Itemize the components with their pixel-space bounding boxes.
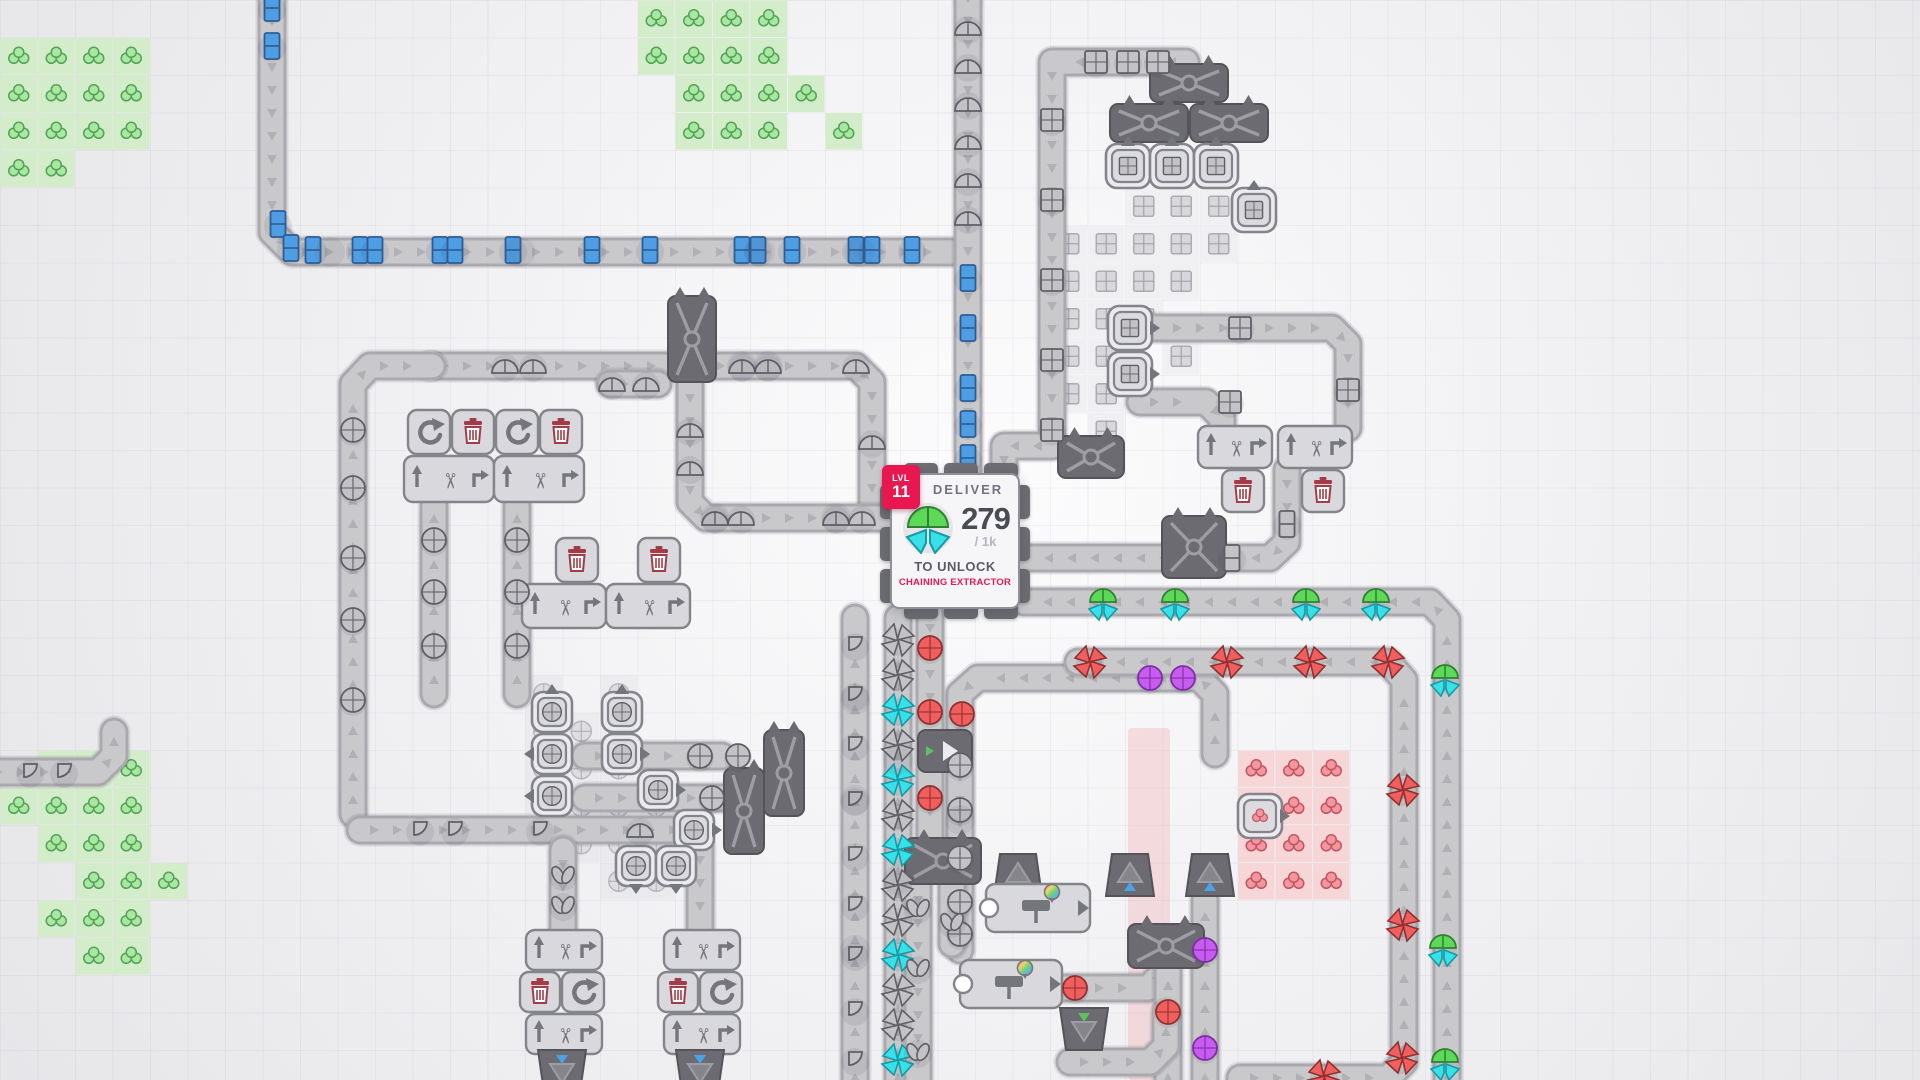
square-node-icon — [1209, 234, 1229, 254]
reward-name: CHAINING EXTRACTOR — [892, 577, 1018, 588]
resource-cell-gem[interactable] — [676, 38, 713, 75]
item-circle4-gray[interactable] — [339, 608, 367, 636]
machine-xmerge[interactable] — [668, 287, 716, 382]
square-node-icon — [1171, 234, 1191, 254]
machine-extractor[interactable] — [1232, 180, 1276, 232]
resource-cell-gem[interactable] — [1, 151, 38, 188]
resource-cell-gem[interactable] — [76, 901, 113, 938]
item-half[interactable] — [519, 354, 547, 382]
resource-cell-heart[interactable] — [1313, 788, 1350, 825]
item-half[interactable] — [598, 372, 626, 400]
machine-tunnel[interactable] — [1186, 854, 1234, 896]
resource-cell-gem[interactable] — [38, 151, 75, 188]
item-quarter[interactable] — [841, 733, 869, 761]
unlock-label: TO UNLOCK — [892, 559, 1018, 574]
square-node-icon — [1134, 234, 1154, 254]
resource-cell-gem[interactable] — [713, 1, 750, 38]
level-number: 11 — [892, 483, 910, 501]
machine-cutter[interactable]: ✂ — [522, 584, 606, 628]
machine-cutter[interactable]: ✂ — [664, 930, 740, 970]
machine-cutter[interactable]: ✂ — [664, 1014, 740, 1054]
game-viewport: ✂✂✂✂✂✂✂✂✂✂ LVL 11 DELIVER 279 / 1k TO UN… — [0, 0, 1920, 1080]
item-half[interactable] — [632, 372, 660, 400]
machine-rotator[interactable] — [700, 972, 742, 1012]
resource-cell-gem[interactable] — [38, 826, 75, 863]
resource-cell-gem[interactable] — [76, 76, 113, 113]
item-circle4-gray[interactable] — [339, 688, 367, 716]
svg-text:✂: ✂ — [691, 1027, 715, 1045]
item-circle4-gray[interactable] — [503, 634, 531, 662]
square-node-icon — [1134, 271, 1154, 291]
resource-cell-gem[interactable] — [676, 1, 713, 38]
svg-text:✂: ✂ — [1224, 440, 1248, 458]
resource-cell-square[interactable] — [1163, 263, 1200, 300]
resource-cell-gem[interactable] — [788, 76, 825, 113]
item-circle4-red[interactable] — [1061, 976, 1089, 1004]
resource-cell-gem[interactable] — [713, 38, 750, 75]
machine-tunnel[interactable] — [1106, 854, 1154, 896]
item-square4[interactable] — [1334, 378, 1362, 406]
resource-cell-gem[interactable] — [113, 901, 150, 938]
item-half[interactable] — [626, 818, 654, 846]
resource-cell-square[interactable] — [1201, 226, 1238, 263]
item-circle4-red[interactable] — [916, 636, 944, 664]
machine-cutter[interactable]: ✂ — [526, 1014, 602, 1054]
belt-item-shadow — [821, 503, 851, 533]
item-half[interactable] — [848, 506, 876, 534]
resource-cell-square[interactable] — [1126, 226, 1163, 263]
square-node-icon — [1209, 196, 1229, 216]
item-square4[interactable] — [1038, 108, 1066, 136]
item-square4[interactable] — [1038, 348, 1066, 376]
svg-text:✂: ✂ — [637, 599, 661, 617]
machine-extractor[interactable] — [1108, 306, 1160, 350]
resource-cell-square[interactable] — [1126, 188, 1163, 225]
item-leaf[interactable] — [938, 910, 966, 938]
square-node-icon — [1171, 271, 1191, 291]
resource-cell-gem[interactable] — [751, 1, 788, 38]
resource-cell-gem[interactable] — [638, 1, 675, 38]
item-quarter[interactable] — [441, 818, 469, 846]
delivery-target: / 1k — [975, 534, 997, 550]
item-square4[interactable] — [1114, 50, 1142, 78]
item-half[interactable] — [727, 506, 755, 534]
resource-cell-gem[interactable] — [713, 76, 750, 113]
square-node-icon — [1171, 196, 1191, 216]
belt-item-shadow — [315, 237, 345, 267]
item-circle4-gray[interactable] — [339, 546, 367, 574]
resource-cell-gem[interactable] — [38, 113, 75, 150]
square-node-icon — [1171, 346, 1191, 366]
item-quarter[interactable] — [50, 760, 78, 788]
item-circle4-gray[interactable] — [946, 753, 974, 781]
resource-cell-gem[interactable] — [38, 901, 75, 938]
item-circle4-gray[interactable] — [724, 744, 752, 772]
resource-cell-gem[interactable] — [113, 938, 150, 975]
square-node-icon — [1134, 196, 1154, 216]
item-circle4-red[interactable] — [916, 700, 944, 728]
belt-item-shadow — [753, 351, 783, 381]
resource-cell-gem[interactable] — [76, 938, 113, 975]
machine-extractor[interactable] — [1238, 794, 1290, 838]
belt-item-shadow — [840, 685, 870, 715]
resource-cell-gem[interactable] — [113, 788, 150, 825]
machine-trash[interactable] — [520, 972, 560, 1012]
item-square4[interactable] — [1038, 188, 1066, 216]
item-quarter[interactable] — [406, 818, 434, 846]
belt-item-shadow — [845, 237, 875, 267]
item-circle4-gray[interactable] — [339, 418, 367, 446]
item-quarter[interactable] — [841, 893, 869, 921]
item-quarter[interactable] — [841, 998, 869, 1026]
machine-tunnel[interactable] — [538, 1050, 586, 1080]
belt-item-shadow — [945, 805, 975, 835]
resource-cell-gem[interactable] — [751, 76, 788, 113]
svg-text:✂: ✂ — [528, 472, 552, 490]
resource-cell-gem[interactable] — [113, 863, 150, 900]
belt-item-shadow — [505, 237, 535, 267]
item-square4[interactable] — [1038, 268, 1066, 296]
item-quarter[interactable] — [526, 818, 554, 846]
machine-extractor[interactable] — [1106, 136, 1150, 188]
item-circle4-gray[interactable] — [339, 476, 367, 504]
resource-cell-gem[interactable] — [751, 38, 788, 75]
item-circle4-gray[interactable] — [946, 846, 974, 874]
resource-cell-gem[interactable] — [826, 113, 863, 150]
item-half[interactable] — [491, 354, 519, 382]
resource-patch-gem — [1, 38, 150, 187]
machine-trash[interactable] — [1222, 470, 1264, 512]
item-half[interactable] — [954, 92, 982, 120]
resource-cell-gem[interactable] — [38, 38, 75, 75]
svg-text:✂: ✂ — [553, 943, 577, 961]
item-half[interactable] — [954, 16, 982, 44]
item-circle4-gray[interactable] — [686, 744, 714, 772]
resource-cell-gem[interactable] — [1, 788, 38, 825]
resource-cell-gem[interactable] — [676, 76, 713, 113]
delivered-count: 279 — [961, 503, 1010, 534]
resource-cell-gem[interactable] — [676, 113, 713, 150]
item-circle4-gray[interactable] — [420, 528, 448, 556]
item-half[interactable] — [954, 168, 982, 196]
resource-cell-heart[interactable] — [1276, 751, 1313, 788]
machine-trash[interactable] — [452, 410, 494, 454]
item-leaf[interactable] — [904, 896, 932, 924]
resource-patch-gem — [638, 1, 862, 150]
circle-node-icon — [571, 721, 591, 741]
resource-cell-heart[interactable] — [1238, 863, 1275, 900]
item-square4[interactable] — [1226, 316, 1254, 344]
machine-extractor[interactable] — [1108, 352, 1160, 396]
machine-cutter[interactable]: ✂ — [526, 930, 602, 970]
resource-cell-gem[interactable] — [113, 76, 150, 113]
resource-cell-heart[interactable] — [1238, 751, 1275, 788]
resource-cell-gem[interactable] — [638, 38, 675, 75]
belt-item-shadow — [883, 745, 913, 775]
svg-text:✂: ✂ — [691, 943, 715, 961]
machine-cutter[interactable]: ✂ — [404, 456, 494, 502]
item-circle4-gray[interactable] — [698, 786, 726, 814]
machine-cutter[interactable]: ✂ — [1278, 426, 1352, 468]
machine-rotator[interactable] — [496, 410, 538, 454]
item-circle4-gray[interactable] — [503, 580, 531, 608]
belt-item-shadow — [883, 865, 913, 895]
machine-tunnel[interactable] — [1060, 1008, 1108, 1050]
machine-extractor[interactable] — [1194, 136, 1238, 188]
resource-cell-heart[interactable] — [1313, 751, 1350, 788]
resource-cell-heart[interactable] — [1313, 863, 1350, 900]
item-circle4-purple[interactable] — [1136, 666, 1164, 694]
resource-cell-gem[interactable] — [76, 38, 113, 75]
item-circle4-red[interactable] — [1154, 1000, 1182, 1028]
resource-cell-gem[interactable] — [76, 863, 113, 900]
conveyor-belt[interactable] — [1140, 397, 1223, 428]
resource-cell-square[interactable] — [1088, 226, 1125, 263]
item-quarter[interactable] — [841, 843, 869, 871]
machine-tunnel[interactable] — [676, 1050, 724, 1080]
item-half[interactable] — [954, 130, 982, 158]
resource-cell-square[interactable] — [1163, 188, 1200, 225]
item-half[interactable] — [842, 354, 870, 382]
item-square4[interactable] — [1216, 390, 1244, 418]
item-half[interactable] — [858, 430, 886, 458]
item-circle4-red[interactable] — [948, 702, 976, 730]
machine-rotator[interactable] — [562, 972, 604, 1012]
item-quarter[interactable] — [841, 1048, 869, 1076]
resource-cell-gem[interactable] — [713, 113, 750, 150]
belt-item-shadow — [700, 503, 730, 533]
square-node-icon — [1096, 234, 1116, 254]
machine-cutter[interactable]: ✂ — [1198, 426, 1272, 468]
resource-cell-gem[interactable] — [151, 863, 188, 900]
machine-trash[interactable] — [1302, 470, 1344, 512]
resource-cell-gem[interactable] — [113, 826, 150, 863]
resource-cell-gem[interactable] — [1, 38, 38, 75]
machine-trash[interactable] — [540, 410, 582, 454]
square-node-icon — [1096, 271, 1116, 291]
belt-item-shadow — [745, 237, 775, 267]
delivery-hub[interactable]: LVL 11 DELIVER 279 / 1k TO UNLOCK CHAINI… — [890, 473, 1020, 609]
item-leaf[interactable] — [904, 956, 932, 984]
item-half[interactable] — [676, 456, 704, 484]
item-square4[interactable] — [1144, 50, 1172, 78]
machine-painter[interactable] — [980, 884, 1090, 932]
item-quarter[interactable] — [841, 633, 869, 661]
resource-cell-heart[interactable] — [1276, 863, 1313, 900]
item-square4[interactable] — [1082, 50, 1110, 78]
machine-cutter[interactable]: ✂ — [606, 584, 690, 628]
resource-cell-gem[interactable] — [113, 113, 150, 150]
level-badge: LVL 11 — [882, 465, 920, 509]
svg-text:✂: ✂ — [1304, 440, 1328, 458]
machine-trash[interactable] — [658, 972, 698, 1012]
resource-cell-square[interactable] — [1126, 263, 1163, 300]
item-circle4-purple[interactable] — [1191, 1036, 1219, 1064]
resource-cell-gem[interactable] — [751, 113, 788, 150]
resource-cell-gem[interactable] — [1, 76, 38, 113]
machine-trash[interactable] — [556, 538, 598, 582]
resource-cell-gem[interactable] — [76, 826, 113, 863]
resource-cell-heart[interactable] — [1313, 826, 1350, 863]
svg-text:✂: ✂ — [553, 599, 577, 617]
item-circle4-gray[interactable] — [420, 580, 448, 608]
item-leaf[interactable] — [904, 1040, 932, 1068]
item-circle4-gray[interactable] — [420, 634, 448, 662]
item-half[interactable] — [954, 206, 982, 234]
item-circle4-red[interactable] — [916, 786, 944, 814]
machine-extractor[interactable] — [1150, 136, 1194, 188]
machine-cutter[interactable]: ✂ — [494, 456, 584, 502]
svg-text:✂: ✂ — [553, 1027, 577, 1045]
resource-cell-gem[interactable] — [113, 38, 150, 75]
resource-cell-gem[interactable] — [76, 788, 113, 825]
belt-item-shadow — [840, 935, 870, 965]
item-half[interactable] — [676, 418, 704, 446]
belt-item-shadow — [727, 351, 757, 381]
machine-xmerge[interactable] — [724, 759, 764, 854]
resource-cell-square[interactable] — [1088, 263, 1125, 300]
resource-cell-gem[interactable] — [38, 788, 75, 825]
item-leaf[interactable] — [549, 863, 577, 891]
item-half[interactable] — [954, 54, 982, 82]
svg-text:✂: ✂ — [438, 472, 462, 490]
resource-cell-square[interactable] — [1163, 226, 1200, 263]
item-circle4-purple[interactable] — [1191, 938, 1219, 966]
machine-trash[interactable] — [638, 538, 680, 582]
resource-cell-gem[interactable] — [1, 113, 38, 150]
item-square4[interactable] — [1038, 418, 1066, 446]
machine-xmerge[interactable] — [764, 721, 804, 816]
machine-xmerge[interactable] — [1162, 507, 1226, 578]
machine-rotator[interactable] — [408, 410, 450, 454]
item-quarter[interactable] — [16, 760, 44, 788]
resource-cell-gem[interactable] — [76, 113, 113, 150]
machine-painter[interactable] — [954, 960, 1062, 1008]
resource-cell-gem[interactable] — [38, 76, 75, 113]
belt-item-shadow — [840, 785, 870, 815]
item-circle4-purple[interactable] — [1169, 666, 1197, 694]
item-leaf[interactable] — [549, 893, 577, 921]
item-circle4-gray[interactable] — [503, 528, 531, 556]
